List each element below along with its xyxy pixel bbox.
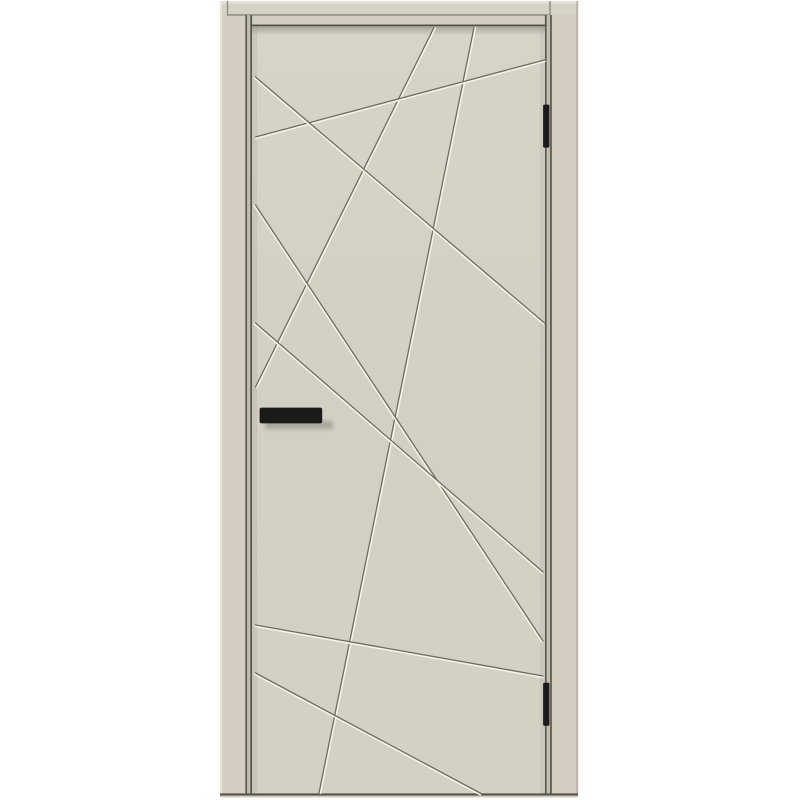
door-scene <box>0 0 800 800</box>
hinge-top <box>543 105 549 148</box>
door-product-image <box>0 0 800 800</box>
casing-joint-left-vertical <box>227 1 228 16</box>
left-frame-stop-line <box>245 15 247 794</box>
door-left-inner-shade <box>252 26 257 793</box>
casing-joint-right-vertical <box>549 1 550 16</box>
frame-left-highlight <box>220 1 222 796</box>
right-frame-stop-line <box>550 15 552 794</box>
door-handle <box>260 408 323 424</box>
left-reveal <box>247 15 250 794</box>
casing-joint-line <box>227 14 550 16</box>
door-left-edge-line <box>250 15 252 794</box>
frame-right-outer-shadow <box>576 1 578 796</box>
bottom-edge-line <box>220 793 578 795</box>
door-top-edge-line <box>250 25 546 27</box>
hinge-bottom <box>543 683 549 726</box>
door-top-inner-shadow <box>252 26 545 35</box>
frame-top-highlight <box>220 1 578 4</box>
bottom-light-strip <box>220 796 578 798</box>
